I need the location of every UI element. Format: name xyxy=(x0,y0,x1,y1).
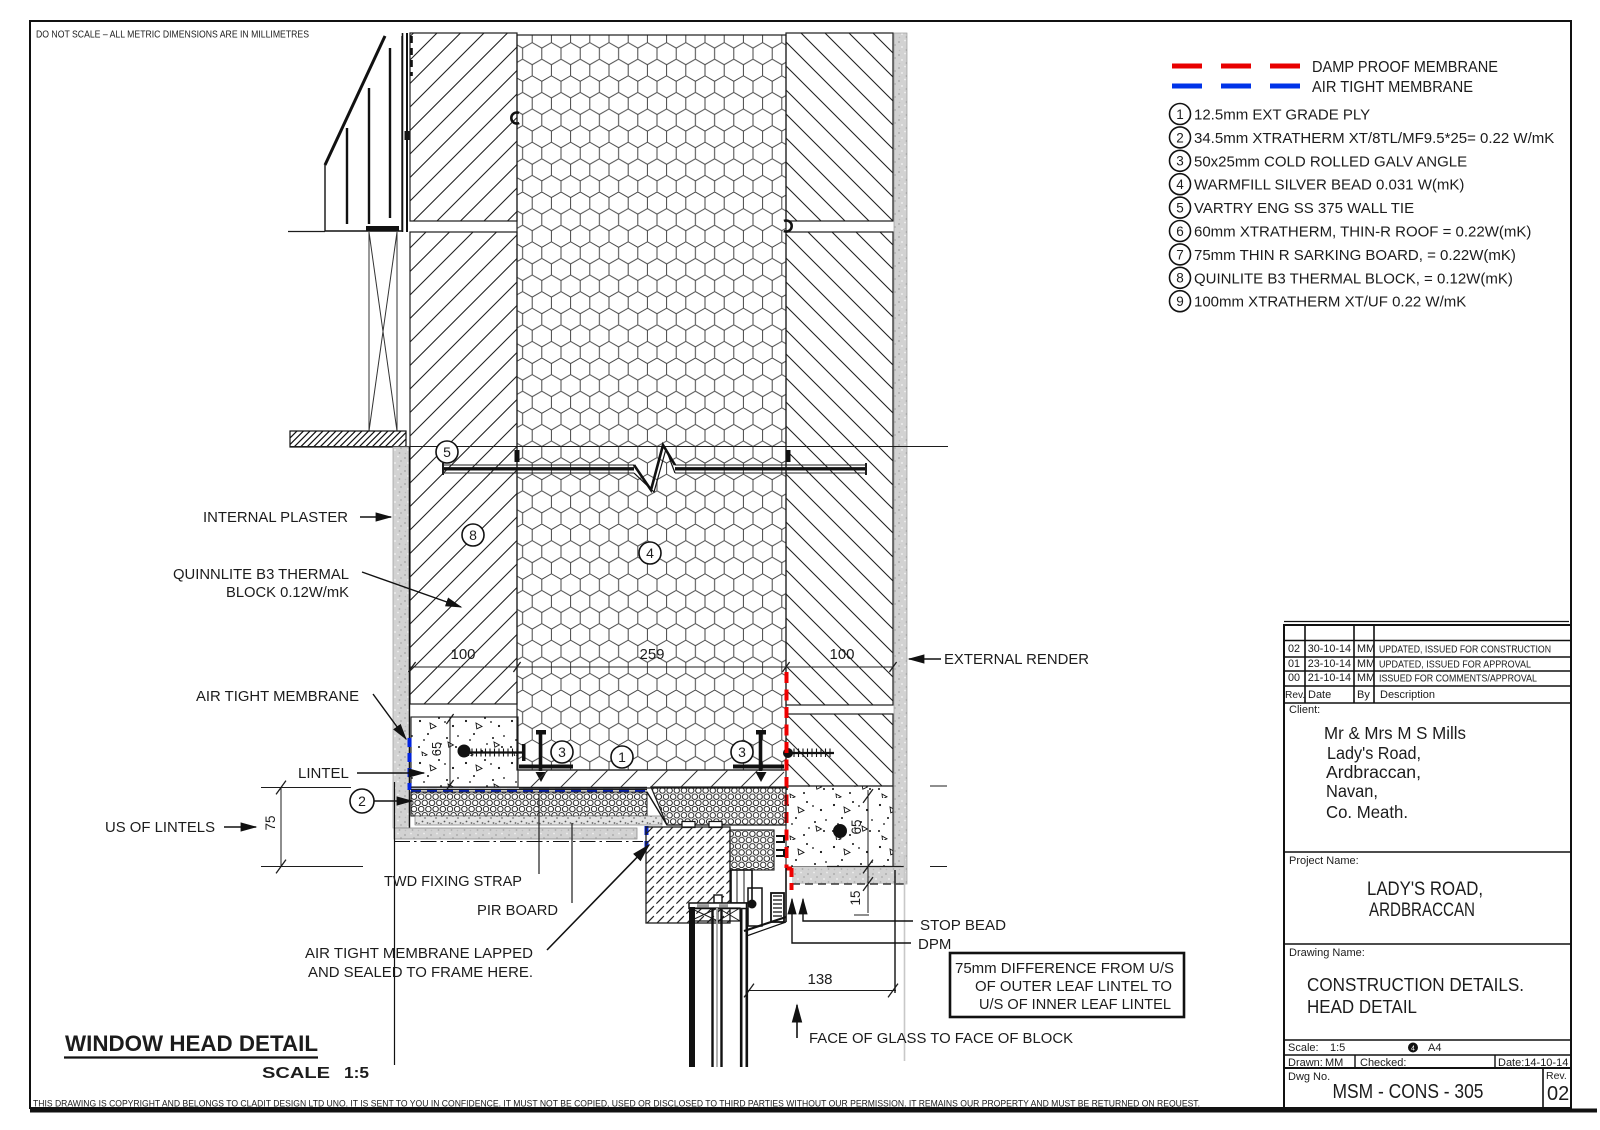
svg-text:4: 4 xyxy=(646,545,654,561)
svg-text:Rev.: Rev. xyxy=(1285,690,1305,701)
svg-text:1:5: 1:5 xyxy=(1330,1042,1345,1054)
svg-text:50x25mm COLD ROLLED GALV ANGLE: 50x25mm COLD ROLLED GALV ANGLE xyxy=(1194,153,1467,170)
svg-text:QUINNLITE B3 THERMAL: QUINNLITE B3 THERMAL xyxy=(173,566,349,583)
svg-text:UPDATED, ISSUED FOR APPROVAL: UPDATED, ISSUED FOR APPROVAL xyxy=(1379,660,1531,671)
svg-text:2: 2 xyxy=(1176,130,1184,145)
svg-text:AIR TIGHT MEMBRANE: AIR TIGHT MEMBRANE xyxy=(1312,79,1473,96)
svg-text:5: 5 xyxy=(443,444,451,460)
svg-text:Co. Meath.: Co. Meath. xyxy=(1326,802,1408,822)
svg-text:STOP BEAD: STOP BEAD xyxy=(920,917,1006,934)
svg-text:AND SEALED TO FRAME HERE.: AND SEALED TO FRAME HERE. xyxy=(308,964,533,981)
svg-text:EXTERNAL RENDER: EXTERNAL RENDER xyxy=(944,651,1089,668)
svg-text:VARTRY ENG SS 375 WALL TIE: VARTRY ENG SS 375 WALL TIE xyxy=(1194,200,1414,217)
svg-text:259: 259 xyxy=(639,646,664,663)
svg-text:138: 138 xyxy=(807,971,832,988)
svg-text:OF OUTER LEAF LINTEL TO: OF OUTER LEAF LINTEL TO xyxy=(975,978,1172,995)
svg-text:U/S OF INNER LEAF LINTEL: U/S OF INNER LEAF LINTEL xyxy=(979,996,1171,1013)
svg-text:3: 3 xyxy=(738,744,746,760)
svg-text:1: 1 xyxy=(618,749,626,765)
svg-text:9: 9 xyxy=(1176,294,1184,309)
svg-text:21-10-14: 21-10-14 xyxy=(1308,672,1351,684)
svg-text:MM: MM xyxy=(1357,643,1375,655)
svg-text:LADY'S ROAD,: LADY'S ROAD, xyxy=(1367,879,1483,900)
svg-text:60mm XTRATHERM, THIN-R ROOF =: 60mm XTRATHERM, THIN-R ROOF = 0.22W(mK) xyxy=(1194,224,1531,241)
svg-text:6: 6 xyxy=(1176,224,1184,239)
svg-text:8: 8 xyxy=(469,527,477,543)
svg-text:AIR TIGHT MEMBRANE LAPPED: AIR TIGHT MEMBRANE LAPPED xyxy=(305,945,533,962)
svg-text:02: 02 xyxy=(1547,1083,1569,1105)
svg-text:DPM: DPM xyxy=(918,936,951,953)
svg-text:Rev.: Rev. xyxy=(1546,1070,1567,1082)
svg-text:MM: MM xyxy=(1357,672,1375,684)
svg-text:Description: Description xyxy=(1380,689,1435,701)
svg-text:FACE OF GLASS TO FACE OF BLOCK: FACE OF GLASS TO FACE OF BLOCK xyxy=(809,1030,1073,1047)
svg-text:100mm XTRATHERM XT/UF 0.22 W/m: 100mm XTRATHERM XT/UF 0.22 W/mK xyxy=(1194,294,1466,311)
svg-text:12.5mm EXT GRADE PLY: 12.5mm EXT GRADE PLY xyxy=(1194,107,1370,124)
svg-text:DO NOT SCALE – ALL METRIC DIME: DO NOT SCALE – ALL METRIC DIMENSIONS ARE… xyxy=(36,30,309,41)
svg-text:8: 8 xyxy=(1176,271,1184,286)
svg-text:75mm THIN R SARKING BOARD, = 0: 75mm THIN R SARKING BOARD, = 0.22W(mK) xyxy=(1194,247,1516,264)
svg-text:BLOCK 0.12W/mK: BLOCK 0.12W/mK xyxy=(226,584,349,601)
svg-text:23-10-14: 23-10-14 xyxy=(1308,658,1351,670)
svg-text:Client:: Client: xyxy=(1289,704,1320,716)
svg-text:By: By xyxy=(1357,689,1370,701)
svg-text:2: 2 xyxy=(358,793,366,809)
svg-text:4: 4 xyxy=(1176,177,1184,192)
svg-text:A4: A4 xyxy=(1428,1042,1441,1054)
svg-text:AIR TIGHT MEMBRANE: AIR TIGHT MEMBRANE xyxy=(196,688,359,705)
svg-text:ISSUED FOR COMMENTS/APPROVAL: ISSUED FOR COMMENTS/APPROVAL xyxy=(1379,674,1537,685)
svg-text:100: 100 xyxy=(829,646,854,663)
svg-text:CONSTRUCTION DETAILS.: CONSTRUCTION DETAILS. xyxy=(1307,974,1524,995)
svg-text:Date: Date xyxy=(1308,689,1331,701)
svg-text:65: 65 xyxy=(429,742,444,756)
svg-text:Project Name:: Project Name: xyxy=(1289,855,1359,867)
svg-text:1:5: 1:5 xyxy=(344,1065,369,1082)
svg-text:3: 3 xyxy=(1176,154,1184,169)
svg-text:THIS DRAWING IS COPYRIGHT AND: THIS DRAWING IS COPYRIGHT AND BELONGS TO… xyxy=(33,1099,1200,1110)
svg-text:UPDATED, ISSUED FOR CONSTRUCTI: UPDATED, ISSUED FOR CONSTRUCTION xyxy=(1379,645,1551,656)
svg-text:MM: MM xyxy=(1357,658,1375,670)
svg-text:75: 75 xyxy=(263,815,278,830)
svg-text:TWD FIXING STRAP: TWD FIXING STRAP xyxy=(384,873,522,890)
svg-text:WARMFILL SILVER BEAD 0.031 W(m: WARMFILL SILVER BEAD 0.031 W(mK) xyxy=(1194,177,1464,194)
svg-text:Navan,: Navan, xyxy=(1326,781,1378,801)
svg-text:SCALE: SCALE xyxy=(262,1065,330,1082)
svg-text:4: 4 xyxy=(1411,1046,1415,1053)
svg-text:02: 02 xyxy=(1288,643,1300,655)
svg-text:5: 5 xyxy=(1176,200,1184,215)
svg-text:WINDOW HEAD DETAIL: WINDOW HEAD DETAIL xyxy=(65,1031,318,1056)
svg-text:34.5mm XTRATHERM XT/8TL/MF9.5*: 34.5mm XTRATHERM XT/8TL/MF9.5*25= 0.22 W… xyxy=(1194,130,1554,147)
svg-text:100: 100 xyxy=(450,646,475,663)
svg-text:30-10-14: 30-10-14 xyxy=(1308,643,1351,655)
svg-text:1: 1 xyxy=(1176,107,1184,122)
svg-text:Lady's Road,: Lady's Road, xyxy=(1327,743,1421,763)
svg-text:15: 15 xyxy=(848,890,863,905)
svg-text:DAMP PROOF MEMBRANE: DAMP PROOF MEMBRANE xyxy=(1312,59,1498,76)
svg-text:Scale:: Scale: xyxy=(1288,1042,1319,1054)
svg-text:Mr & Mrs M S Mills: Mr & Mrs M S Mills xyxy=(1324,723,1466,743)
svg-text:INTERNAL PLASTER: INTERNAL PLASTER xyxy=(203,509,348,526)
svg-text:65: 65 xyxy=(849,819,864,834)
svg-text:MSM - CONS - 305: MSM - CONS - 305 xyxy=(1333,1081,1484,1103)
svg-text:HEAD DETAIL: HEAD DETAIL xyxy=(1307,996,1417,1017)
svg-text:00: 00 xyxy=(1288,672,1300,684)
svg-text:US OF LINTELS: US OF LINTELS xyxy=(105,819,215,836)
svg-text:Drawing Name:: Drawing Name: xyxy=(1289,947,1365,959)
svg-text:Ardbraccan,: Ardbraccan, xyxy=(1326,762,1421,782)
svg-text:QUINLITE B3 THERMAL BLOCK, = 0: QUINLITE B3 THERMAL BLOCK, = 0.12W(mK) xyxy=(1194,270,1513,287)
svg-text:01: 01 xyxy=(1288,658,1300,670)
svg-text:75mm DIFFERENCE FROM U/S: 75mm DIFFERENCE FROM U/S xyxy=(955,960,1174,977)
svg-text:3: 3 xyxy=(558,744,566,760)
svg-text:PIR BOARD: PIR BOARD xyxy=(477,902,558,919)
svg-text:Dwg No.: Dwg No. xyxy=(1288,1071,1330,1083)
svg-text:LINTEL: LINTEL xyxy=(298,765,349,782)
svg-text:7: 7 xyxy=(1176,247,1184,262)
svg-text:ARDBRACCAN: ARDBRACCAN xyxy=(1369,900,1475,921)
